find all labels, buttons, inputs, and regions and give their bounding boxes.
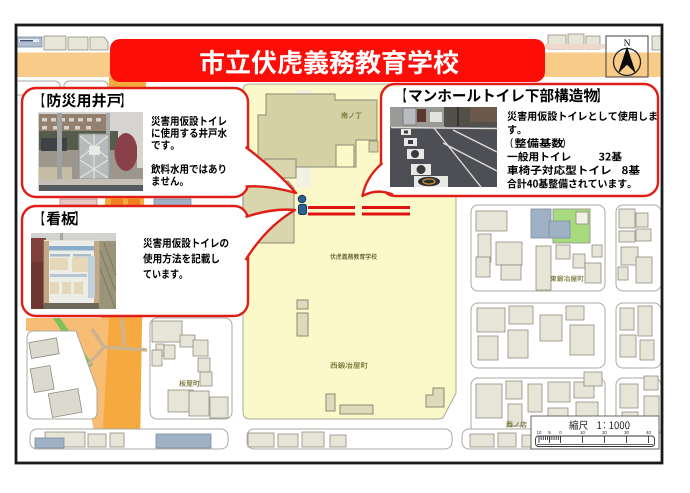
svg-text:30: 30 (624, 430, 629, 435)
svg-text:10: 10 (537, 430, 542, 435)
svg-text:10: 10 (580, 430, 585, 435)
svg-text:40: 40 (646, 430, 651, 435)
svg-text:20: 20 (602, 430, 607, 435)
